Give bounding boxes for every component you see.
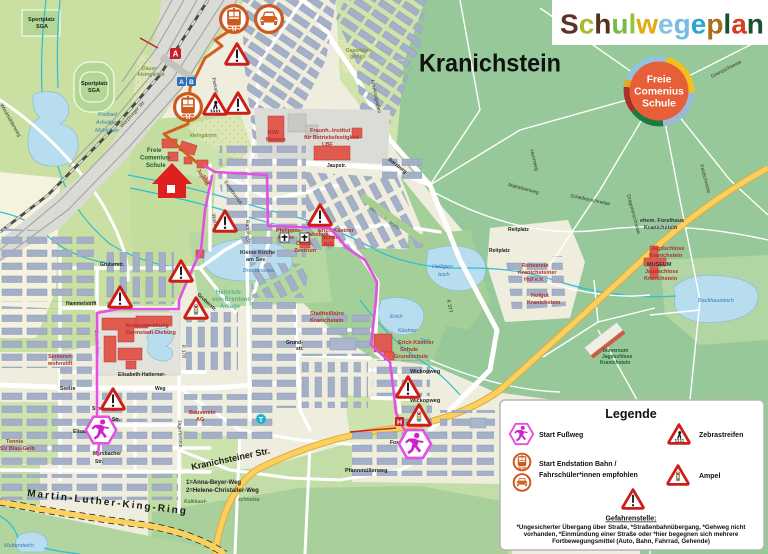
svg-text:KfW: KfW: [268, 130, 280, 136]
svg-text:teich: teich: [438, 272, 450, 278]
svg-text:A: A: [173, 50, 179, 59]
svg-text:Darmstadt-Dieburg: Darmstadt-Dieburg: [126, 330, 176, 336]
svg-text:Pfannmüllerweg: Pfannmüllerweg: [345, 468, 387, 474]
svg-text:MUSEUM: MUSEUM: [647, 262, 672, 268]
svg-text:Wickopweg: Wickopweg: [410, 398, 440, 404]
svg-text:Schule: Schule: [400, 347, 418, 353]
svg-text:T: T: [259, 417, 264, 424]
svg-text:Str.: Str.: [95, 459, 104, 465]
svg-text:Arheilger: Arheilger: [95, 120, 119, 126]
svg-text:von-Brentano-: von-Brentano-: [212, 297, 253, 303]
svg-text:Schule: Schule: [146, 163, 166, 169]
svg-text:Schule: Schule: [642, 99, 676, 110]
svg-text:Reitplatz: Reitplatz: [508, 227, 529, 233]
svg-text:Tennis: Tennis: [6, 439, 23, 445]
svg-text:Kranichstein: Kranichstein: [644, 276, 678, 282]
svg-text:SGA: SGA: [88, 88, 100, 94]
svg-text:A: A: [179, 79, 184, 86]
svg-text:ehem. Forsthaus: ehem. Forsthaus: [640, 218, 684, 224]
svg-text:2=Helene-Christaller-Weg: 2=Helene-Christaller-Weg: [186, 488, 259, 494]
svg-text:Start Endstation Bahn /: Start Endstation Bahn /: [539, 461, 616, 468]
svg-text:Hofgut: Hofgut: [531, 293, 549, 299]
svg-text:Kranichsteiner: Kranichsteiner: [518, 270, 557, 276]
svg-text:Freibad: Freibad: [98, 112, 118, 118]
svg-text:Comenius: Comenius: [634, 87, 684, 98]
svg-text:Reitverein: Reitverein: [522, 263, 549, 269]
svg-text:schneise: schneise: [238, 497, 260, 503]
svg-text:Reitplatz: Reitplatz: [489, 248, 510, 254]
svg-text:Gruberstr.: Gruberstr.: [100, 262, 125, 268]
svg-text:Kranichstein: Kranichstein: [310, 318, 344, 324]
svg-text:Kästner: Kästner: [398, 328, 418, 334]
svg-text:Elisabeth-Hatterner-: Elisabeth-Hatterner-: [118, 372, 166, 378]
svg-text:Schulwegeplan: Schulwegeplan: [560, 9, 764, 40]
svg-text:Backhausteich: Backhausteich: [698, 298, 734, 304]
svg-text:Senioren-: Senioren-: [48, 354, 74, 360]
svg-text:Seelze: Seelze: [60, 386, 76, 392]
svg-text:Mühlchen: Mühlchen: [95, 128, 119, 134]
svg-text:Muttersteich: Muttersteich: [4, 543, 34, 549]
svg-text:B: B: [189, 79, 194, 86]
svg-text:Kalkkaut-: Kalkkaut-: [184, 499, 207, 505]
svg-text:SV Blau-Gelb: SV Blau-Gelb: [0, 446, 35, 452]
svg-text:für Betriebsfestigkeit: für Betriebsfestigkeit: [304, 135, 359, 141]
svg-text:str.: str.: [296, 346, 304, 352]
svg-text:Bartningstr.: Bartningstr.: [244, 220, 251, 245]
svg-text:SGA: SGA: [36, 24, 48, 30]
svg-text:Anlage: Anlage: [220, 304, 241, 310]
svg-text:Hammelstrift: Hammelstrift: [66, 301, 97, 307]
svg-text:K 178: K 178: [180, 345, 186, 358]
svg-text:Kranichstein: Kranichstein: [649, 253, 683, 259]
svg-text:Start Fußweg: Start Fußweg: [539, 432, 583, 439]
svg-text:Stadtteilbüro: Stadtteilbüro: [310, 311, 345, 317]
svg-text:Legende: Legende: [605, 407, 656, 421]
svg-text:Freie: Freie: [147, 148, 162, 154]
svg-text:Gefahrenstelle:: Gefahrenstelle:: [606, 516, 657, 523]
svg-text:am See: am See: [246, 257, 265, 263]
svg-text:gärten: gärten: [350, 54, 365, 60]
svg-text:Heiligen-: Heiligen-: [432, 264, 454, 270]
svg-text:Brentanosee: Brentanosee: [243, 268, 274, 274]
svg-text:Jaupstr.: Jaupstr.: [327, 163, 347, 169]
svg-text:kleingärten: kleingärten: [138, 72, 165, 78]
svg-text:Grundschule: Grundschule: [394, 354, 428, 360]
svg-text:Kranichstein: Kranichstein: [527, 300, 561, 306]
svg-text:Fahrschüler*innen empfohlen: Fahrschüler*innen empfohlen: [539, 472, 638, 479]
svg-text:H: H: [397, 420, 402, 427]
svg-text:Fraunh.-Institut: Fraunh.-Institut: [310, 128, 350, 134]
svg-text:1=Anna-Beyer-Weg: 1=Anna-Beyer-Weg: [186, 480, 241, 486]
svg-text:*Ungesicherter Übergang über S: *Ungesicherter Übergang über Straße, *St…: [517, 524, 746, 531]
svg-text:IGS: IGS: [324, 242, 334, 248]
svg-text:Hof e.V.: Hof e.V.: [524, 277, 544, 283]
svg-text:Fortbewegungsmittel (Auto, Bah: Fortbewegungsmittel (Auto, Bahn, Fahrrad…: [552, 538, 710, 545]
svg-text:Jagdschloss: Jagdschloss: [651, 246, 684, 252]
svg-text:Ampel: Ampel: [699, 473, 720, 480]
svg-text:AG: AG: [196, 417, 204, 423]
svg-text:Sportplatz: Sportplatz: [81, 81, 108, 87]
svg-text:Kranichstein: Kranichstein: [600, 360, 630, 366]
svg-text:Kleine Kirche: Kleine Kirche: [240, 250, 275, 256]
svg-text:Kreisverwaltung: Kreisverwaltung: [126, 323, 169, 329]
svg-text:Jagdschloss: Jagdschloss: [645, 269, 678, 275]
svg-text:Kranichstein: Kranichstein: [419, 50, 561, 78]
svg-text:kleingärten: kleingärten: [190, 133, 217, 139]
svg-text:Hessen: Hessen: [266, 137, 286, 143]
svg-text:See: See: [420, 338, 430, 344]
svg-text:Bauverein: Bauverein: [189, 410, 216, 416]
svg-text:LBF: LBF: [322, 142, 333, 148]
svg-text:Str.: Str.: [112, 417, 121, 423]
svg-text:Zentrum: Zentrum: [294, 248, 316, 254]
svg-text:Zebrastreifen: Zebrastreifen: [699, 432, 743, 439]
svg-text:Sportplatz: Sportplatz: [28, 17, 55, 23]
svg-text:wohnstift: wohnstift: [47, 361, 73, 367]
svg-text:Freie: Freie: [647, 75, 672, 86]
svg-text:Comenius-: Comenius-: [140, 156, 171, 162]
svg-text:vorhanden, *Einmündung einer S: vorhanden, *Einmündung einer Straße oder…: [524, 531, 739, 538]
svg-text:Kranichstein: Kranichstein: [644, 225, 678, 231]
svg-text:Jägerforststr.: Jägerforststr.: [176, 420, 183, 449]
svg-text:Erich: Erich: [390, 314, 403, 320]
svg-text:Heinrich-: Heinrich-: [216, 290, 242, 296]
svg-text:Wickopweg: Wickopweg: [410, 369, 440, 375]
svg-text:Weg: Weg: [155, 386, 165, 392]
